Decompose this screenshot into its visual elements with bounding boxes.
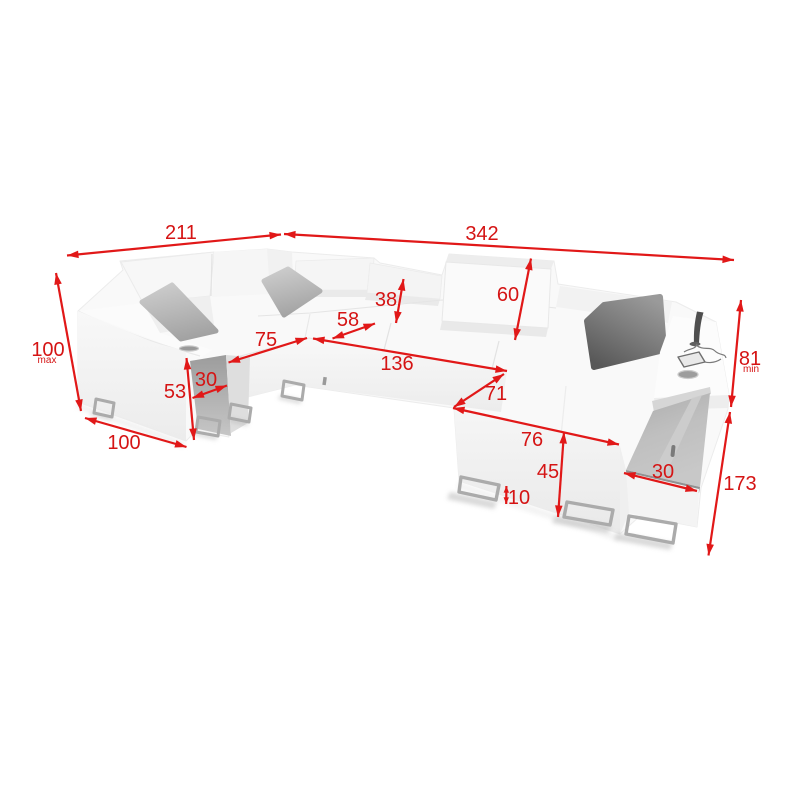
- svg-text:100: 100: [107, 432, 140, 454]
- svg-text:75: 75: [255, 329, 277, 351]
- svg-text:30: 30: [195, 369, 217, 391]
- svg-text:60: 60: [497, 284, 519, 306]
- svg-text:max: max: [38, 355, 57, 366]
- svg-text:136: 136: [380, 353, 413, 375]
- svg-text:71: 71: [485, 383, 507, 405]
- svg-text:76: 76: [521, 429, 543, 451]
- svg-text:53: 53: [164, 381, 186, 403]
- svg-text:min: min: [743, 364, 759, 375]
- svg-text:10: 10: [508, 487, 530, 509]
- svg-text:342: 342: [465, 223, 498, 245]
- svg-text:211: 211: [165, 222, 197, 244]
- svg-text:58: 58: [337, 309, 359, 331]
- svg-text:38: 38: [375, 289, 397, 311]
- svg-text:30: 30: [652, 461, 674, 483]
- svg-text:45: 45: [537, 461, 559, 483]
- svg-text:173: 173: [723, 473, 756, 495]
